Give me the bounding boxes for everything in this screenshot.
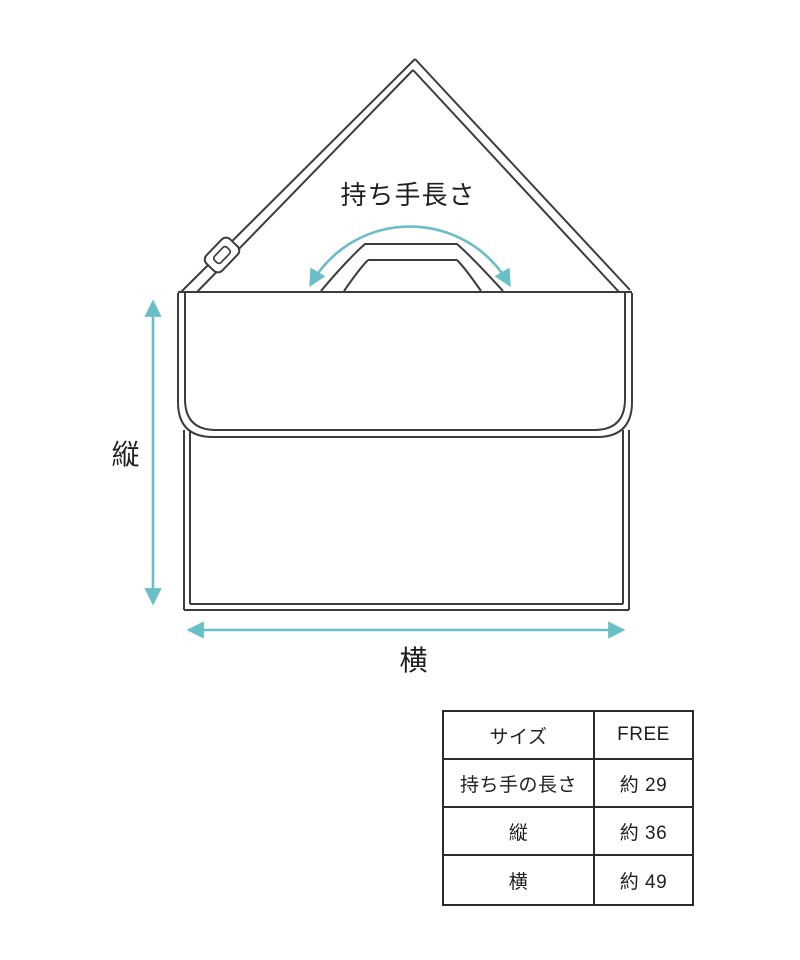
bag-flap — [178, 293, 632, 437]
size-table-header-value: FREE — [595, 712, 692, 760]
size-table-header-label: サイズ — [444, 712, 595, 760]
size-table: サイズ FREE 持ち手の長さ 約 29 縦 約 36 横 約 49 — [442, 710, 694, 906]
bag-handle — [321, 244, 503, 291]
size-table-row-value: 約 36 — [595, 808, 692, 856]
bag-body — [178, 292, 632, 610]
handle-length-label: 持ち手長さ — [308, 182, 508, 208]
size-table-row-value: 約 49 — [595, 856, 692, 904]
strap-buckle-icon — [202, 235, 241, 275]
width-label: 横 — [364, 647, 464, 675]
size-table-row-label: 横 — [444, 856, 595, 904]
size-table-row-label: 縦 — [444, 808, 595, 856]
shoulder-strap — [181, 59, 630, 292]
height-label: 縦 — [96, 441, 156, 469]
size-table-row-value: 約 29 — [595, 760, 692, 808]
size-diagram-page: 持ち手長さ 縦 横 サイズ FREE 持ち手の長さ 約 29 縦 約 36 横 … — [0, 0, 800, 960]
handle-measure-arrow — [311, 227, 509, 284]
size-table-row-label: 持ち手の長さ — [444, 760, 595, 808]
